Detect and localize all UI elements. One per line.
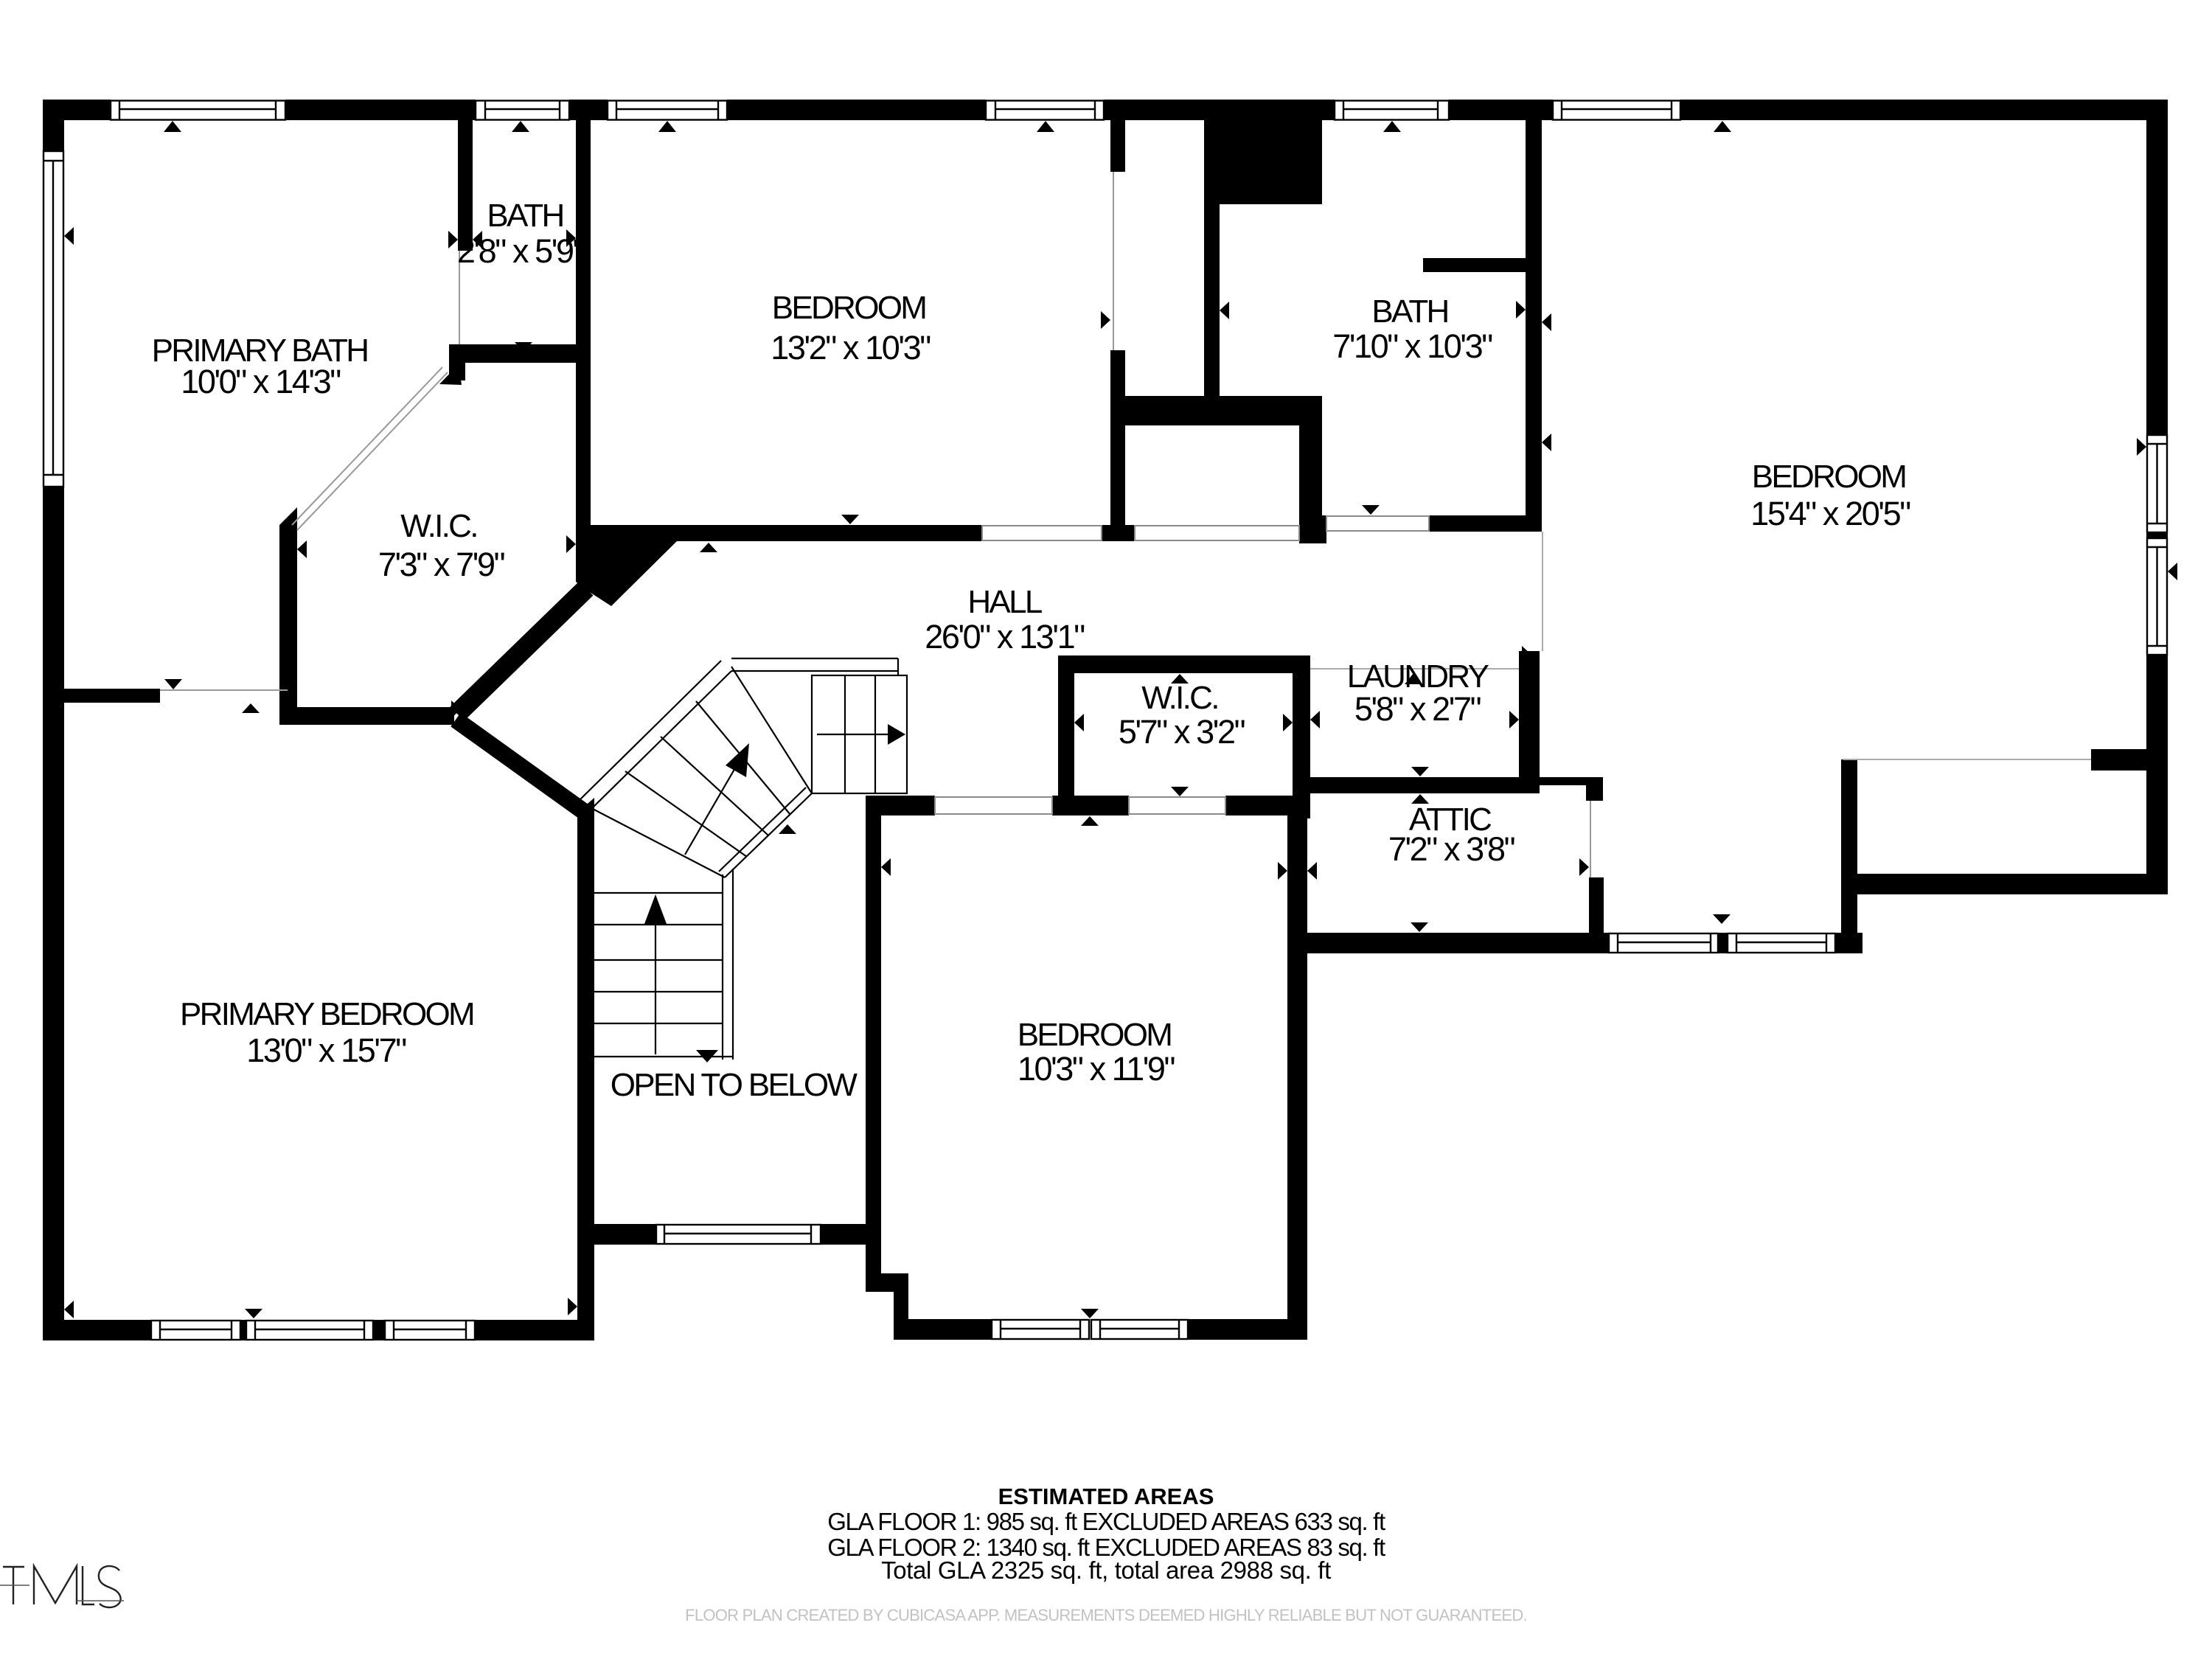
svg-text:PRIMARY BEDROOM: PRIMARY BEDROOM bbox=[180, 996, 473, 1032]
svg-text:10'3" x 11'9": 10'3" x 11'9" bbox=[1018, 1050, 1175, 1088]
svg-text:26'0" x 13'1": 26'0" x 13'1" bbox=[925, 618, 1085, 655]
svg-text:FLOOR PLAN CREATED BY CUBICASA: FLOOR PLAN CREATED BY CUBICASA APP. MEAS… bbox=[685, 1606, 1527, 1624]
svg-text:BEDROOM: BEDROOM bbox=[772, 290, 925, 326]
svg-text:GLA FLOOR 1: 985 sq. ft EXCLUD: GLA FLOOR 1: 985 sq. ft EXCLUDED AREAS 6… bbox=[827, 1508, 1385, 1535]
svg-text:Total GLA 2325 sq. ft, total a: Total GLA 2325 sq. ft, total area 2988 s… bbox=[881, 1557, 1331, 1584]
svg-text:BATH: BATH bbox=[487, 198, 563, 234]
svg-text:OPEN TO BELOW: OPEN TO BELOW bbox=[611, 1067, 858, 1103]
svg-text:ESTIMATED AREAS: ESTIMATED AREAS bbox=[998, 1484, 1214, 1509]
svg-text:2'8" x 5'9": 2'8" x 5'9" bbox=[457, 232, 584, 270]
svg-text:BEDROOM: BEDROOM bbox=[1018, 1017, 1171, 1053]
svg-text:15'4" x 20'5": 15'4" x 20'5" bbox=[1750, 495, 1910, 532]
svg-text:W.I.C.: W.I.C. bbox=[400, 508, 477, 544]
svg-text:BATH: BATH bbox=[1371, 293, 1447, 330]
svg-text:5'7" x 3'2": 5'7" x 3'2" bbox=[1119, 713, 1245, 751]
svg-text:7'10" x 10'3": 7'10" x 10'3" bbox=[1332, 327, 1492, 365]
svg-text:LAUNDRY: LAUNDRY bbox=[1347, 658, 1489, 695]
svg-text:BEDROOM: BEDROOM bbox=[1752, 459, 1905, 495]
svg-text:7'2" x 3'8": 7'2" x 3'8" bbox=[1388, 830, 1515, 868]
svg-text:13'2" x 10'3": 13'2" x 10'3" bbox=[771, 329, 931, 366]
svg-text:7'3" x 7'9": 7'3" x 7'9" bbox=[378, 546, 505, 583]
svg-text:HALL: HALL bbox=[967, 584, 1042, 620]
svg-text:5'8" x 2'7": 5'8" x 2'7" bbox=[1354, 690, 1481, 728]
svg-text:13'0" x 15'7": 13'0" x 15'7" bbox=[246, 1032, 406, 1069]
svg-text:10'0" x 14'3": 10'0" x 14'3" bbox=[181, 363, 341, 400]
svg-text:W.I.C.: W.I.C. bbox=[1141, 680, 1218, 716]
